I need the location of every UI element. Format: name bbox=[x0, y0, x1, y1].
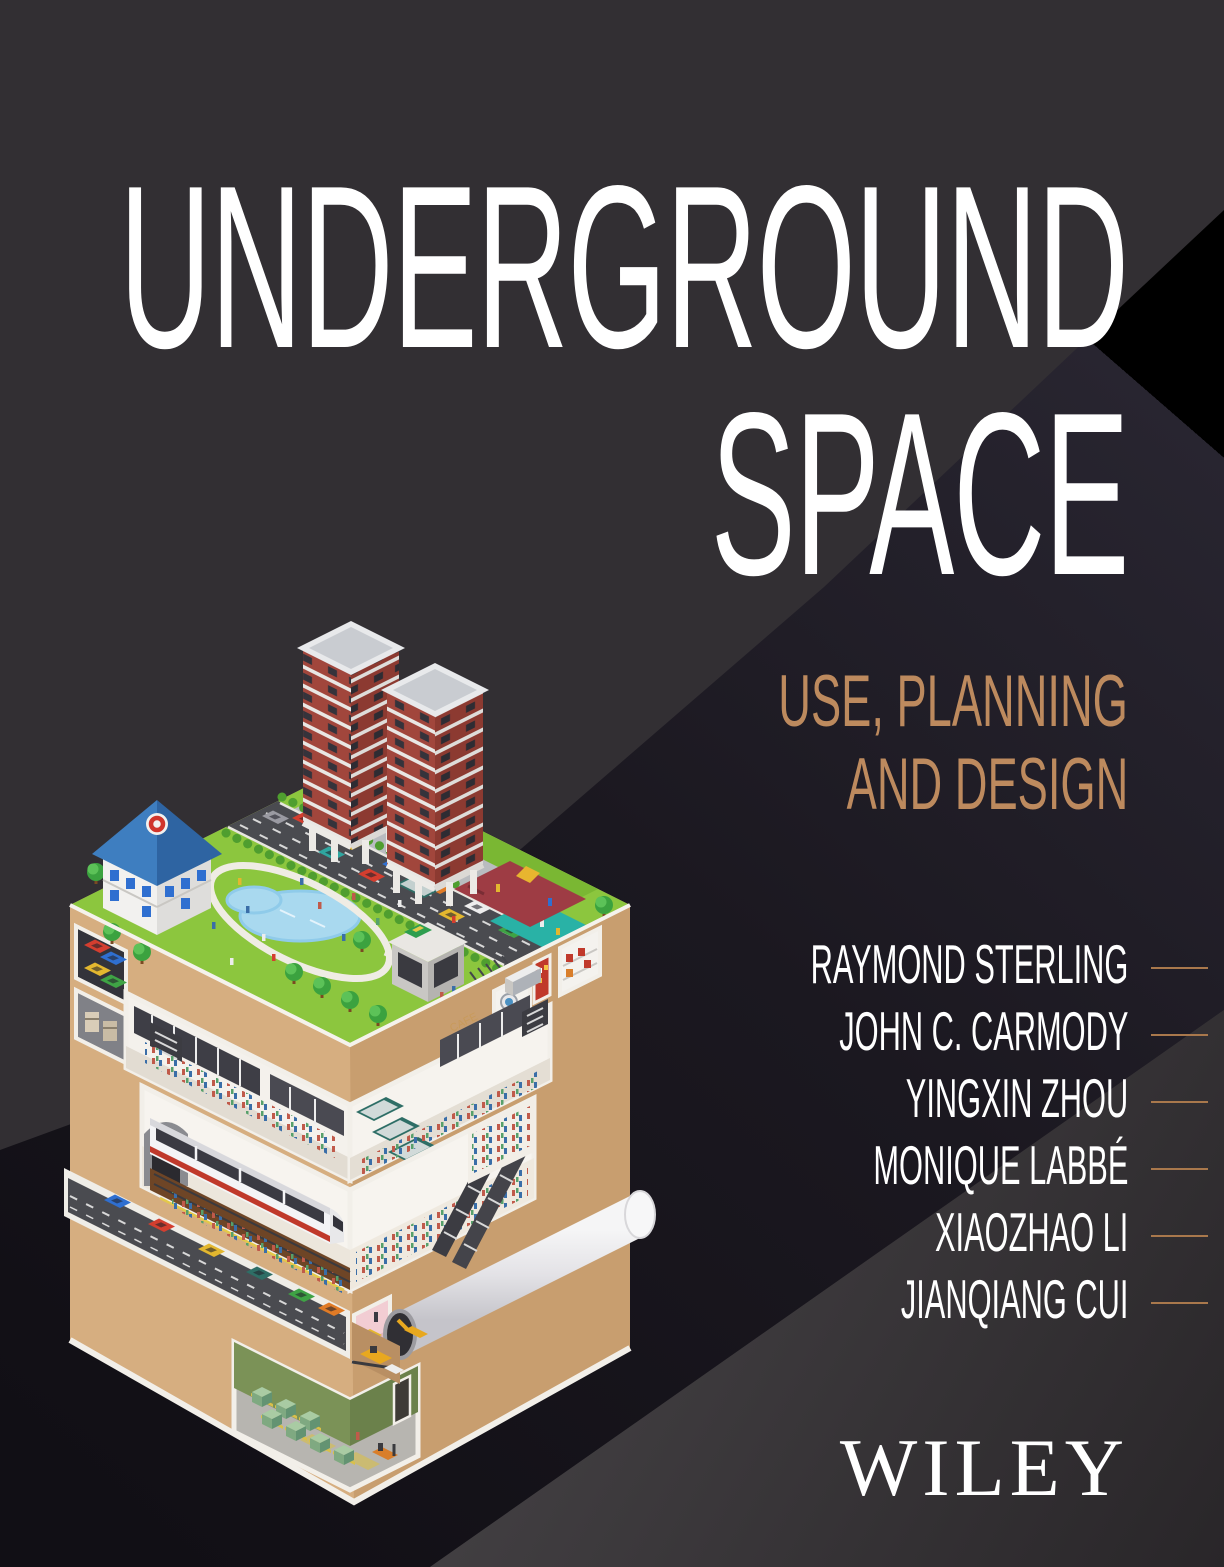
subtitle-line-1: USE, PLANNING bbox=[564, 665, 1128, 738]
author-name: JIANQIANG CUI bbox=[722, 1272, 1128, 1327]
subtitle-line-2: AND DESIGN bbox=[674, 748, 1128, 821]
author-rule bbox=[1151, 1235, 1208, 1237]
author-rule bbox=[1151, 1302, 1208, 1304]
book-cover: CAFE bbox=[0, 0, 1224, 1567]
author-name: MONIQUE LABBÉ bbox=[673, 1138, 1128, 1193]
author-name: JOHN C. CARMODY bbox=[612, 1004, 1128, 1059]
publisher-logo: WILEY bbox=[840, 1427, 1129, 1509]
title-line-1: UNDERGROUND bbox=[0, 152, 1128, 384]
title-line-2: SPACE bbox=[369, 379, 1128, 611]
author-rule bbox=[1151, 1034, 1208, 1036]
residential-tower-right bbox=[381, 663, 489, 906]
author-name: YINGXIN ZHOU bbox=[731, 1071, 1128, 1126]
medical-logo-icon bbox=[146, 813, 168, 835]
author-name: XIAOZHAO LI bbox=[783, 1205, 1128, 1260]
author-rule bbox=[1151, 967, 1208, 969]
author-rule bbox=[1151, 1101, 1208, 1103]
author-name: RAYMOND STERLING bbox=[561, 937, 1128, 992]
author-rule bbox=[1151, 1168, 1208, 1170]
